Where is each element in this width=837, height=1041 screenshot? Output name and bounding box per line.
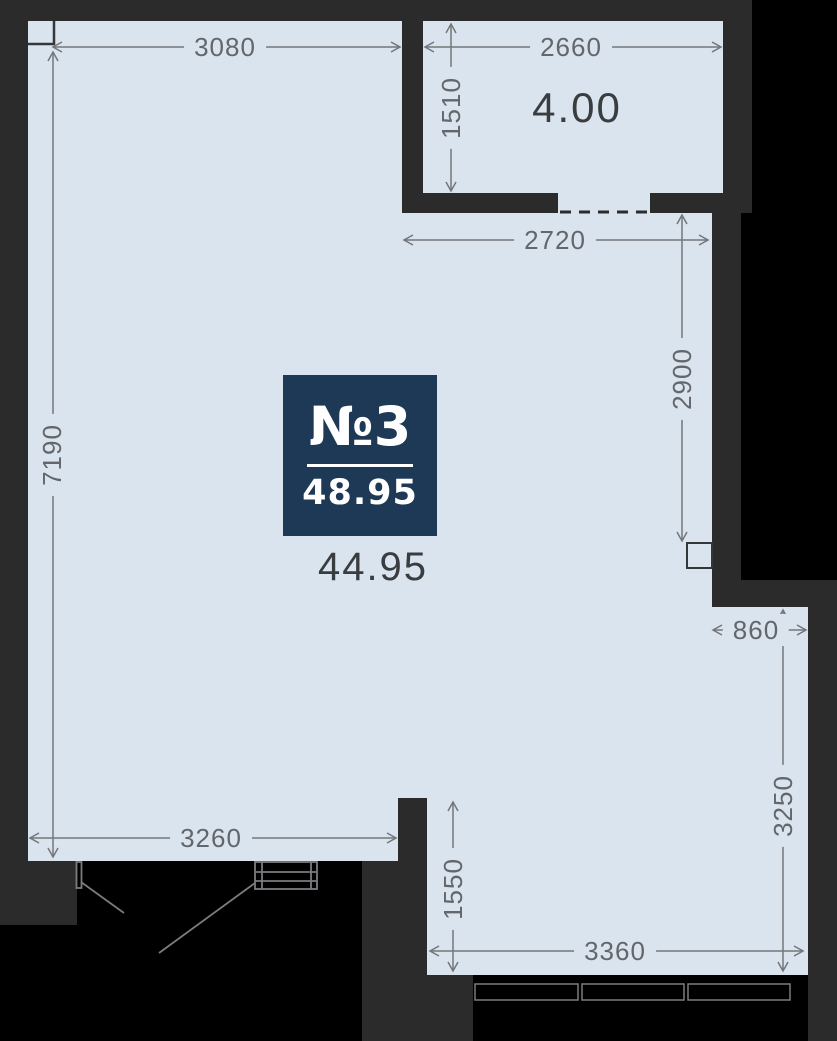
wall-stub (398, 798, 427, 861)
dim-right-lower-height: 3250 (767, 765, 799, 847)
card-divider (307, 464, 413, 467)
dim-bottom-width: 3360 (574, 935, 656, 967)
living-area-label: 44.95 (318, 547, 428, 587)
dim-left-height: 7190 (36, 414, 68, 496)
dim-bottom-step-height: 1550 (437, 848, 469, 930)
dim-bottom-left-width: 3260 (170, 822, 252, 854)
dim-right-upper-height: 2900 (666, 338, 698, 420)
dim-upper-right-width: 2720 (514, 224, 596, 256)
unit-number-card: №3 48.95 (283, 375, 437, 536)
dim-top-left-width: 3080 (184, 31, 266, 63)
balcony-area-label: 4.00 (532, 87, 622, 129)
dim-right-notch-width: 860 (723, 614, 789, 646)
dim-balcony-depth: 1510 (435, 67, 467, 149)
unit-total-area: 48.95 (302, 476, 418, 511)
floor-plan: 3080 7190 2660 1510 2720 2900 860 3250 1… (0, 0, 837, 1041)
unit-number: №3 (309, 400, 412, 454)
dim-balcony-width: 2660 (530, 31, 612, 63)
